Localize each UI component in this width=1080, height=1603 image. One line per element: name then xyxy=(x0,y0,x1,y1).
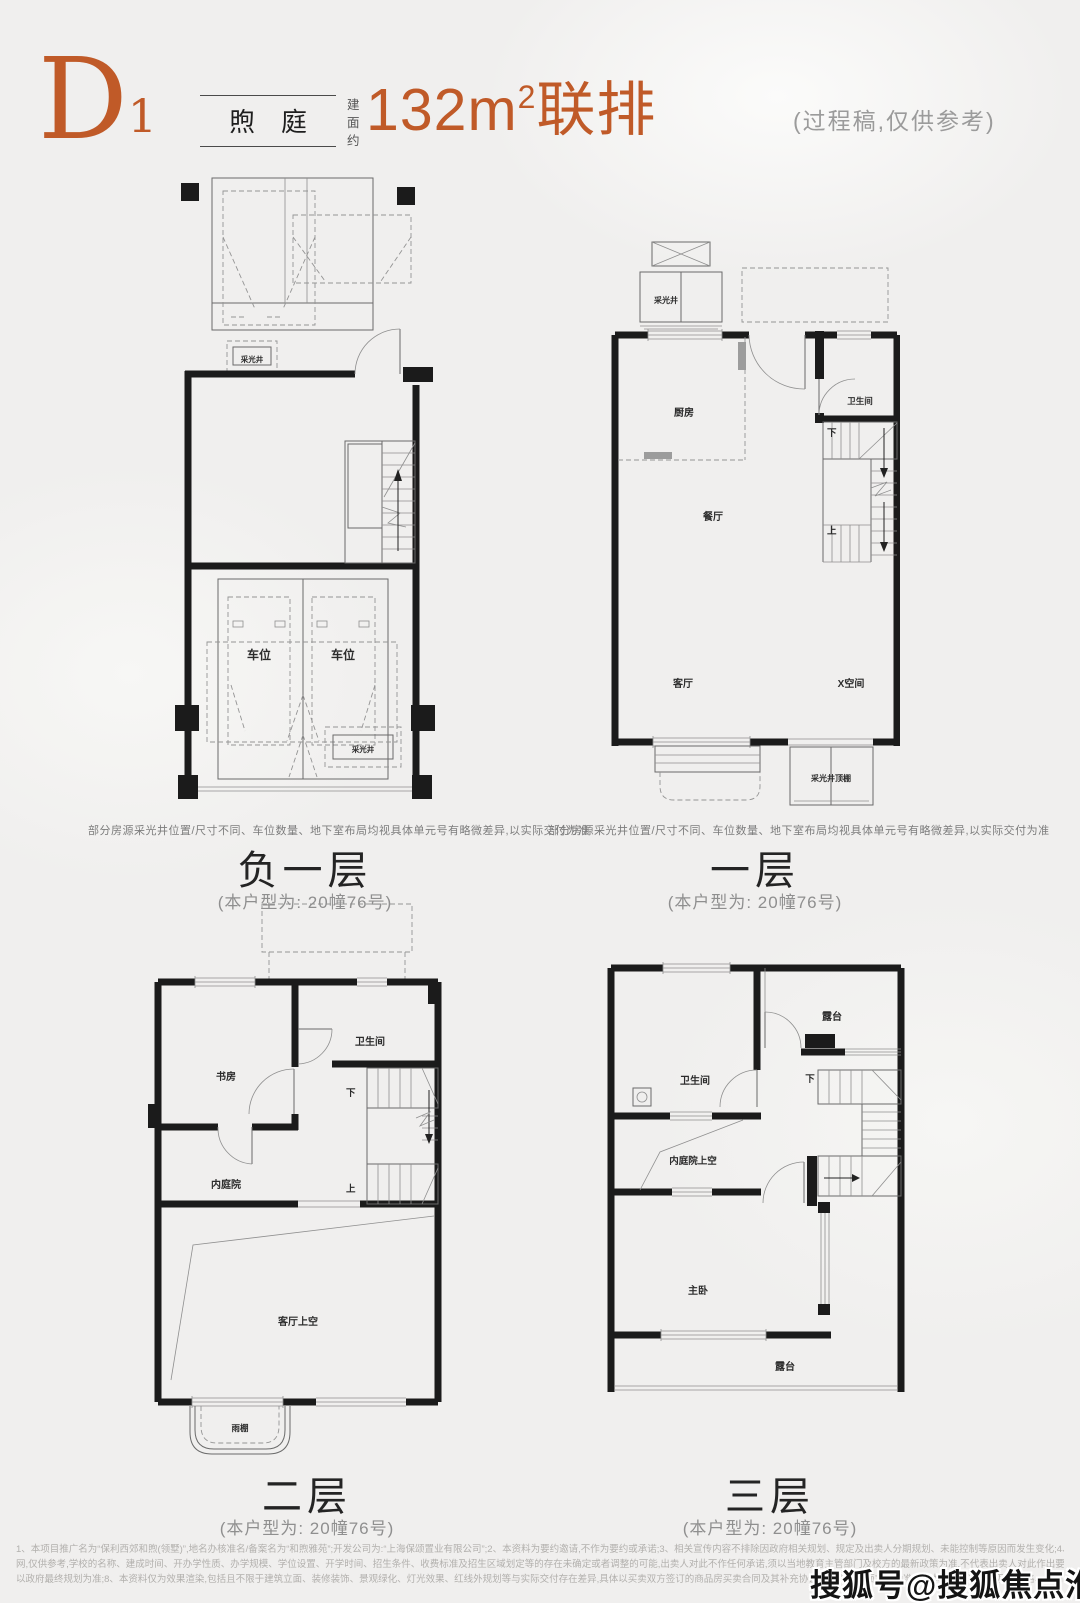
room-label-master-bedroom: 主卧 xyxy=(688,1284,708,1297)
ff-stairs xyxy=(823,422,897,562)
room-label-down: 下 xyxy=(346,1088,356,1099)
basement-entry-door xyxy=(355,329,400,374)
plan-code: D1 xyxy=(38,44,157,156)
area-suffix: 联排 xyxy=(536,77,656,143)
room-label-dining: 餐厅 xyxy=(702,510,723,523)
ff-entry-door xyxy=(749,335,805,389)
room-label-parking-left: 车位 xyxy=(247,647,271,662)
tf-hall-door xyxy=(763,1162,804,1203)
ff-light-well: 采光井 xyxy=(640,272,722,329)
room-label-light-well: 采光井 xyxy=(653,295,678,305)
room-label-light-well-canopy: 采光井顶棚 xyxy=(810,773,851,783)
room-label-courtyard: 内庭院 xyxy=(211,1178,241,1191)
second-floor-subtitle: (本户型为: 20幢76号) xyxy=(157,1514,457,1539)
room-label-study: 书房 xyxy=(216,1070,236,1083)
room-label-terrace-bottom: 露台 xyxy=(775,1360,795,1373)
room-label-kitchen: 厨房 xyxy=(674,406,694,419)
sf-walls xyxy=(148,982,440,1402)
room-label-x-space: X空间 xyxy=(838,677,865,690)
footnote-line-1: 1、本项目推广名为“保利西郊和煦(领墅)”,地名办核准名/备案名为“和煦雅苑”;… xyxy=(16,1542,1064,1557)
room-label-canopy: 雨棚 xyxy=(231,1423,249,1433)
room-label-up: 上 xyxy=(827,525,837,537)
sf-void-diagonal xyxy=(171,1216,434,1380)
area-prefix-vertical: 建面约 xyxy=(347,96,362,150)
room-label-down: 下 xyxy=(827,428,837,439)
plan-code-number: 1 xyxy=(128,93,157,139)
room-label-bathroom: 卫生间 xyxy=(355,1035,385,1048)
basement-light-well-bottom: 采光井 xyxy=(325,727,401,767)
ff-kitchen xyxy=(618,337,746,460)
ff-terrace-steps xyxy=(655,746,760,800)
room-label-down: 下 xyxy=(805,1074,815,1085)
basement-plan-svg: 采光井 xyxy=(175,175,435,800)
area-title: 132m2联排 xyxy=(366,72,656,149)
tf-stairs xyxy=(818,1070,901,1196)
watermark: 搜狐号@搜狐焦点淮南站 xyxy=(810,1560,1080,1603)
basement-plan: 采光井 xyxy=(175,175,435,805)
room-label-bathroom: 卫生间 xyxy=(680,1074,710,1087)
basement-subtitle: (本户型为: 20幢76号) xyxy=(155,888,455,913)
room-label-living: 客厅 xyxy=(672,677,693,690)
first-floor-disclaimer: 部分房源采光井位置/尺寸不同、车位数量、地下室布局均视具体单元号有略微差异,以实… xyxy=(548,822,1050,838)
room-label-living-void: 客厅上空 xyxy=(277,1315,318,1328)
draft-note: (过程稿,仅供参考) xyxy=(793,102,996,136)
tf-courtyard-diagonal xyxy=(640,1120,743,1190)
ff-dashed-overlay xyxy=(742,268,888,322)
room-label-bathroom: 卫生间 xyxy=(847,396,873,406)
third-floor-plan-svg: 露台 卫生间 下 内庭院上空 主卧 露台 xyxy=(600,940,910,1460)
ff-light-well-canopy: 采光井顶棚 xyxy=(790,747,873,805)
room-label-terrace-top: 露台 xyxy=(822,1010,842,1023)
room-label-light-well-bottom: 采光井 xyxy=(351,744,375,754)
area-value: 132m xyxy=(366,77,518,143)
first-floor-plan-svg: 采光井 xyxy=(608,230,900,815)
basement-stairs xyxy=(345,441,415,563)
third-floor-plan: 露台 卫生间 下 内庭院上空 主卧 露台 xyxy=(600,940,910,1465)
floor-plan-sheet: D1 煦庭 建面约 132m2联排 (过程稿,仅供参考) 采光井 xyxy=(0,0,1080,1603)
tf-bath-door xyxy=(720,1070,757,1107)
sf-room-labels: 书房 卫生间 下 上 内庭院 客厅上空 xyxy=(211,1035,385,1328)
sf-canopy: 雨棚 xyxy=(190,1406,290,1454)
basement-light-well-top: 采光井 xyxy=(227,341,277,371)
room-label-courtyard-void: 内庭院上空 xyxy=(669,1155,717,1167)
basement-walls xyxy=(185,367,433,779)
first-floor-subtitle: (本户型为: 20幢76号) xyxy=(605,888,905,913)
tf-sliding-window xyxy=(818,1202,830,1315)
plan-code-letter: D xyxy=(38,35,128,165)
ff-flue-box xyxy=(652,242,710,266)
tf-washbasin xyxy=(633,1088,651,1106)
room-label-up: 上 xyxy=(346,1183,356,1195)
ff-room-labels: 厨房 卫生间 下 上 餐厅 客厅 X空间 xyxy=(672,396,873,690)
room-label-light-well-top: 采光井 xyxy=(240,354,264,364)
plan-name-tag: 煦庭 xyxy=(200,95,336,147)
sf-study-door xyxy=(249,1069,294,1114)
second-floor-plan-svg: 雨棚 书房 卫生间 下 上 内庭院 客厅上空 xyxy=(148,902,470,1460)
sf-stairs xyxy=(367,1068,438,1204)
tf-walls xyxy=(611,968,901,1392)
tf-terrace-door xyxy=(765,968,801,1048)
second-floor-plan: 雨棚 书房 卫生间 下 上 内庭院 客厅上空 xyxy=(148,902,470,1465)
first-floor-plan: 采光井 xyxy=(608,230,900,820)
basement-disclaimer: 部分房源采光井位置/尺寸不同、车位数量、地下室布局均视具体单元号有略微差异,以实… xyxy=(88,822,590,838)
basement-overlay xyxy=(212,178,411,330)
sf-courtyard-door xyxy=(218,1127,252,1164)
room-label-parking-right: 车位 xyxy=(331,647,355,662)
basement-columns xyxy=(175,183,435,799)
sf-dashed-overlay xyxy=(262,904,412,980)
sf-bath-door xyxy=(298,1029,332,1064)
area-sup: 2 xyxy=(518,79,537,115)
third-floor-subtitle: (本户型为: 20幢76号) xyxy=(620,1514,920,1539)
